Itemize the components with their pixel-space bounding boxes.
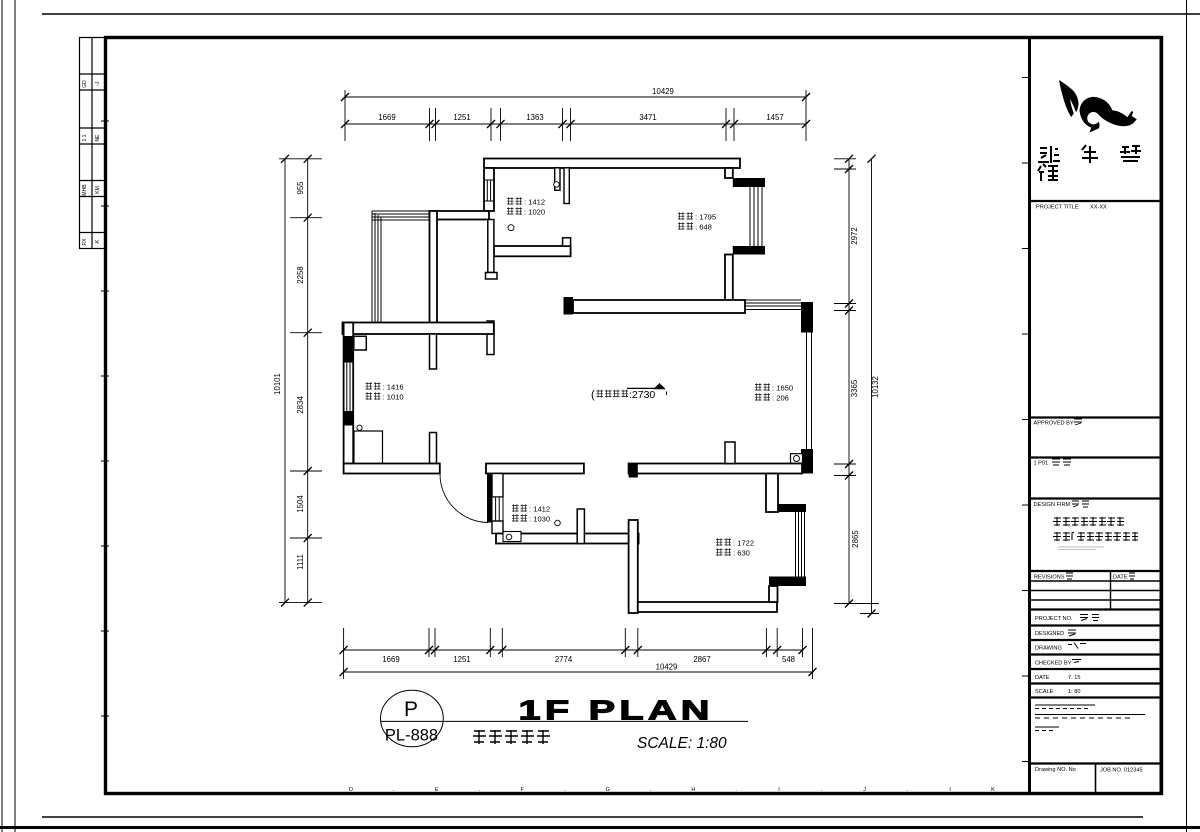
svg-text:NE: NE [95,134,101,142]
svg-text:PL-888: PL-888 [385,727,438,745]
svg-text:: 630: : 630 [733,548,750,557]
svg-text:2972: 2972 [850,227,859,244]
svg-text:1504: 1504 [296,495,305,513]
svg-text:2865: 2865 [851,530,860,548]
svg-text:JOB NO. 012345: JOB NO. 012345 [1100,768,1143,774]
svg-text:DRAWING: DRAWING [1035,646,1062,652]
svg-text:KM: KM [95,186,101,194]
svg-text:3471: 3471 [639,113,656,122]
svg-text:1111: 1111 [296,554,305,570]
svg-text:1F PLAN: 1F PLAN [519,695,712,726]
svg-text:: 1795: : 1795 [695,212,716,221]
svg-text:2834: 2834 [296,396,305,414]
svg-text:J: J [863,787,866,793]
svg-text::2730: :2730 [629,389,655,401]
svg-text:: 1020: : 1020 [524,207,545,216]
svg-text:SCALE: SCALE [1035,689,1054,695]
svg-text:2867: 2867 [693,655,710,664]
svg-text:CHECKED BY: CHECKED BY [1035,661,1072,667]
svg-text:-J: -J [95,81,101,86]
svg-text:2774: 2774 [555,655,573,664]
svg-text:D: D [349,787,353,793]
svg-text:10132: 10132 [871,376,880,398]
svg-text:(: ( [591,389,595,401]
svg-text:548: 548 [782,655,795,664]
svg-text:1:1: 1:1 [82,134,88,141]
svg-text:MHB: MHB [82,184,88,196]
svg-text:SCALE: 1:80: SCALE: 1:80 [637,735,727,752]
svg-text:REVISIONS: REVISIONS [1034,575,1065,581]
svg-text:: 1010: : 1010 [383,392,404,401]
svg-text:DATE: DATE [1035,675,1050,681]
svg-text:: 206: : 206 [772,393,789,402]
svg-text:1251: 1251 [453,113,470,122]
svg-text:XX-XX: XX-XX [1090,205,1107,211]
svg-text:: 1650: : 1650 [772,383,793,392]
svg-text:1 P01: 1 P01 [1034,461,1049,467]
svg-text:1457: 1457 [766,113,783,122]
svg-text:DATE: DATE [1113,575,1128,581]
svg-text:10101: 10101 [273,373,282,395]
svg-text:: 1412: : 1412 [524,197,545,206]
svg-text:K: K [991,787,995,793]
svg-text:: 1030: : 1030 [529,514,550,523]
svg-text:GD: GD [82,80,88,88]
svg-text:: 1722: : 1722 [733,538,754,547]
svg-text:H: H [691,787,695,793]
svg-text:1363: 1363 [526,113,543,122]
svg-text:1669: 1669 [378,113,395,122]
svg-text:1251: 1251 [453,655,470,664]
svg-text:DESIGNED: DESIGNED [1035,631,1064,637]
svg-text:PROJECT TITLE: PROJECT TITLE [1036,205,1079,211]
svg-text:G: G [606,787,610,793]
svg-text:-K: -K [95,239,101,245]
svg-text:1669: 1669 [382,655,399,664]
svg-text:2258: 2258 [296,266,305,283]
svg-text:7. 15: 7. 15 [1068,675,1080,681]
svg-text:RX: RX [82,238,88,246]
svg-text:3365: 3365 [850,379,859,397]
svg-text:: 648: : 648 [695,222,712,231]
svg-text:: 1412: : 1412 [529,504,550,513]
svg-text:E: E [435,787,439,793]
svg-text:1: 80: 1: 80 [1068,689,1080,695]
svg-text:10429: 10429 [656,663,678,672]
svg-text:955: 955 [296,181,305,195]
svg-text:DESIGN FIRM: DESIGN FIRM [1034,502,1071,508]
svg-text:: 1416: : 1416 [383,382,404,391]
svg-text:Drawing NO. No: Drawing NO. No [1035,767,1076,773]
svg-text:P: P [404,698,418,721]
svg-text:10429: 10429 [652,87,674,96]
svg-text:PROJECT NO.: PROJECT NO. [1035,616,1073,622]
svg-text:APPROVED BY: APPROVED BY [1034,421,1074,427]
